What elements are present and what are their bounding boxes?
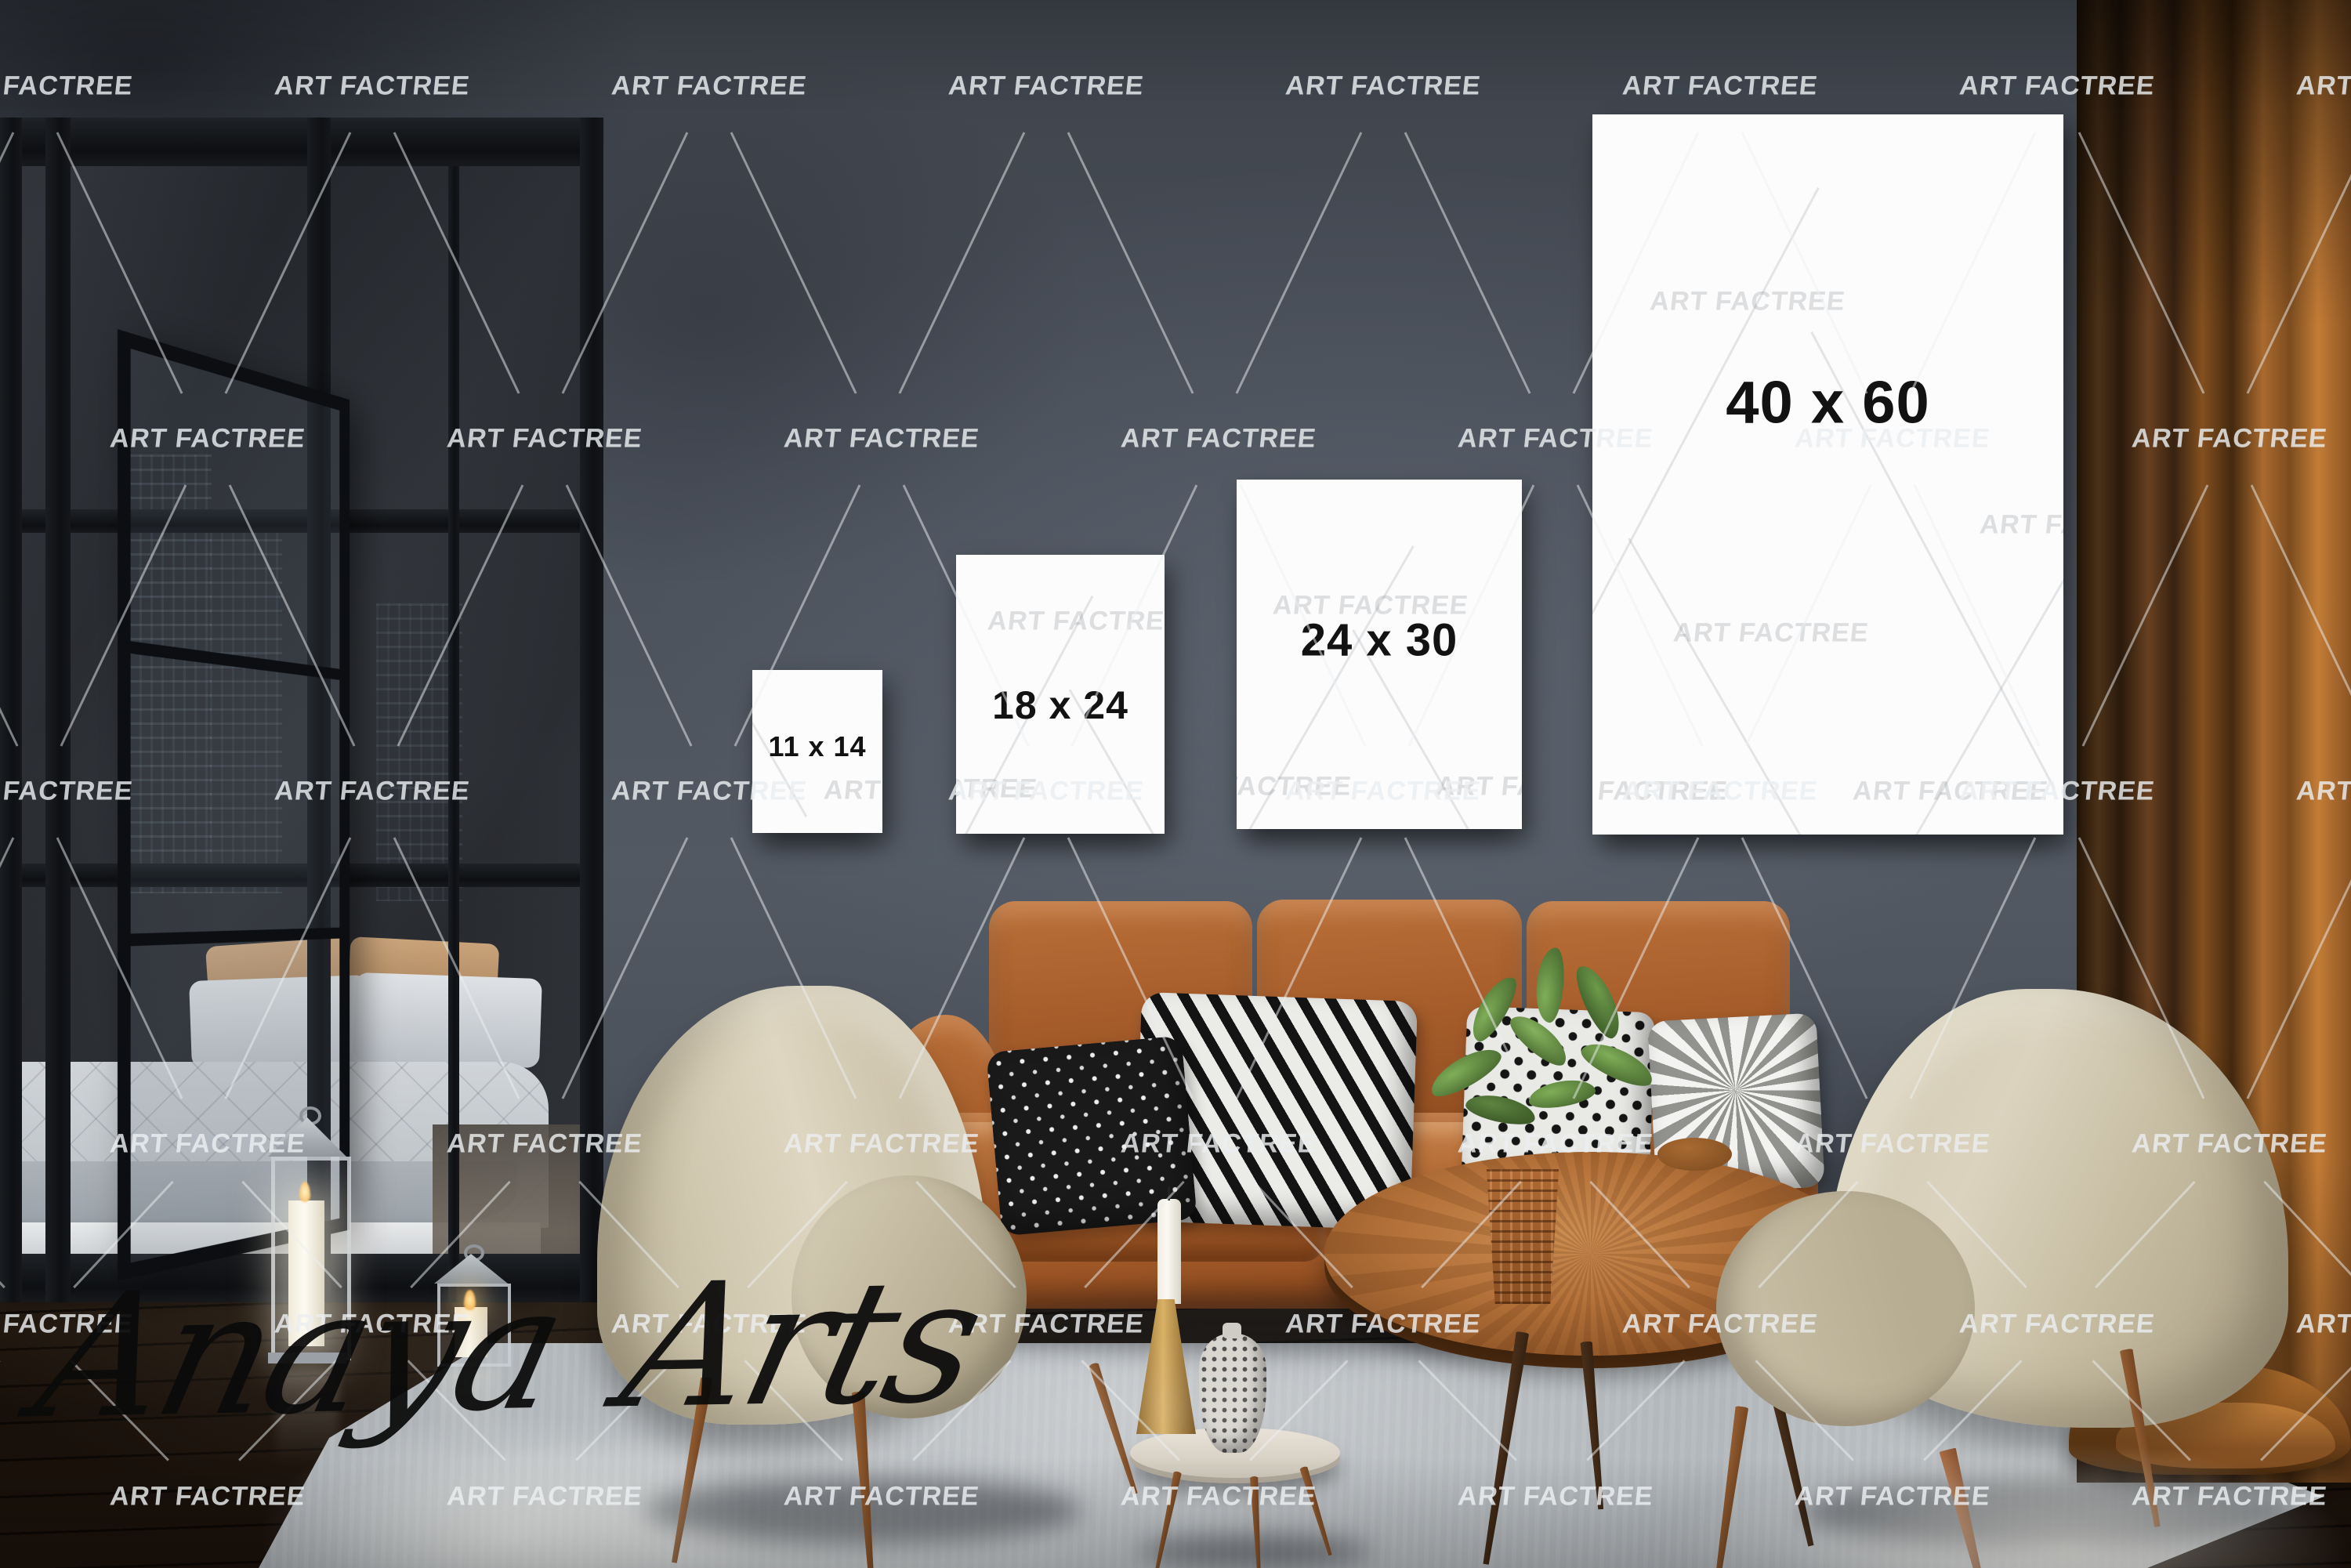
poster-ghost-watermark: ART FACTREE bbox=[1434, 772, 1522, 802]
plant-leaf bbox=[1425, 1040, 1507, 1103]
living-room-poster-mockup: ART FACTREE11 x 14ART FACTREEART FACTREE… bbox=[0, 0, 2351, 1568]
wooden-bowl bbox=[1657, 1138, 1732, 1171]
armchair-right-seat bbox=[1716, 1191, 1975, 1426]
poster-ghost-watermark: ART FACTREE bbox=[1649, 286, 1847, 317]
poster-ghost-watermark: ART FACTREE bbox=[956, 774, 1038, 805]
taper-candle bbox=[1157, 1199, 1181, 1304]
potted-plant bbox=[1411, 964, 1661, 1199]
poster-size-label: 11 x 14 bbox=[768, 730, 866, 763]
poster-ghost-watermark: ART FACTREE bbox=[822, 775, 882, 806]
poster-ghost-watermark: ART FACTREE bbox=[1237, 772, 1353, 802]
poster-size-label: 40 x 60 bbox=[1726, 368, 1930, 436]
poster-size-label: 24 x 30 bbox=[1301, 614, 1458, 667]
plant-leaf bbox=[1464, 971, 1523, 1047]
poster-ghost-watermark: ART FACTREE bbox=[1978, 509, 2063, 540]
poster-ghost-watermark: ART FACTREE bbox=[1851, 776, 2049, 806]
plant-leaf bbox=[1570, 960, 1628, 1043]
candle-wick bbox=[1168, 1186, 1170, 1200]
poster-40x60: ART FACTREEART FACTREEART FACTREEART FAC… bbox=[1592, 114, 2063, 835]
plant-leaf bbox=[1527, 1076, 1597, 1112]
poster-11x14: ART FACTREE11 x 14 bbox=[752, 670, 882, 833]
poster-ghost-watermark: ART FACTREE bbox=[1592, 776, 1730, 806]
signature-watermark: Anaya Arts bbox=[20, 1243, 996, 1458]
poster-18x24: ART FACTREEART FACTREE18 x 24 bbox=[956, 555, 1165, 834]
sunlight-patch bbox=[1787, 1442, 2351, 1568]
poster-24x30: ART FACTREEART FACTREEART FACTREE24 x 30 bbox=[1237, 480, 1522, 829]
poster-size-label: 18 x 24 bbox=[992, 683, 1128, 728]
plant-leaf bbox=[1504, 1008, 1574, 1073]
poster-ghost-watermark: ART FACTREE bbox=[986, 607, 1165, 637]
lantern-cap bbox=[268, 1117, 346, 1157]
poster-ghost-watermark: ART FACTREE bbox=[1672, 617, 1871, 648]
side-table-shadow bbox=[1136, 1536, 1371, 1567]
plant-leaf bbox=[1464, 1090, 1538, 1129]
